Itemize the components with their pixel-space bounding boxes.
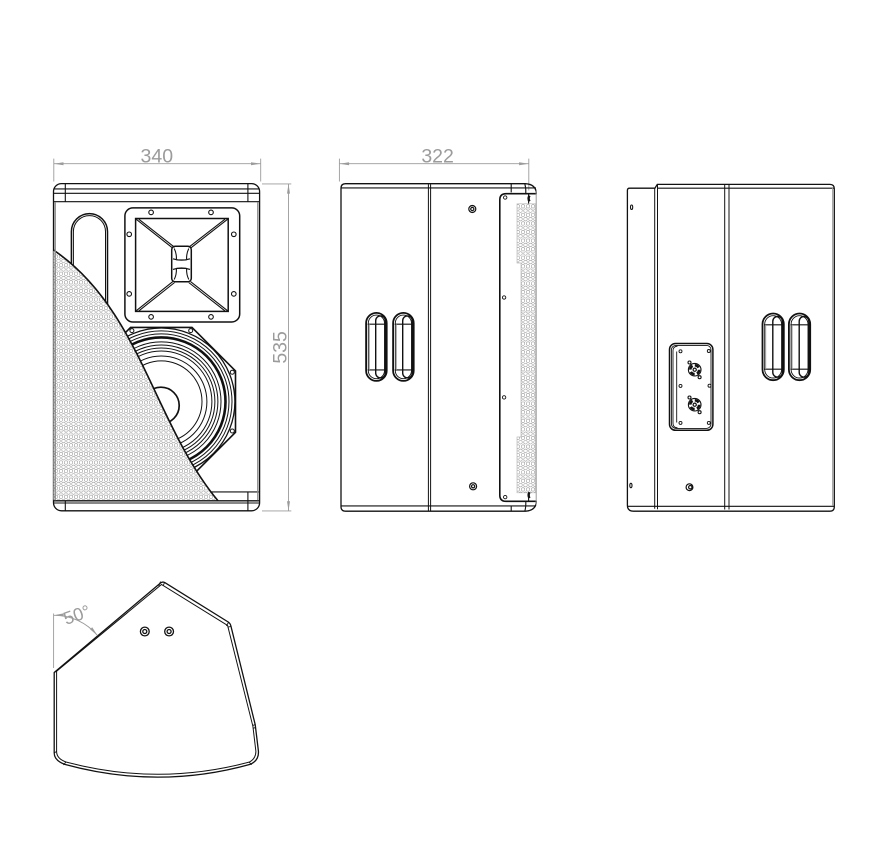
svg-text:322: 322	[421, 146, 454, 168]
svg-text:340: 340	[141, 146, 174, 168]
svg-text:535: 535	[270, 331, 292, 364]
